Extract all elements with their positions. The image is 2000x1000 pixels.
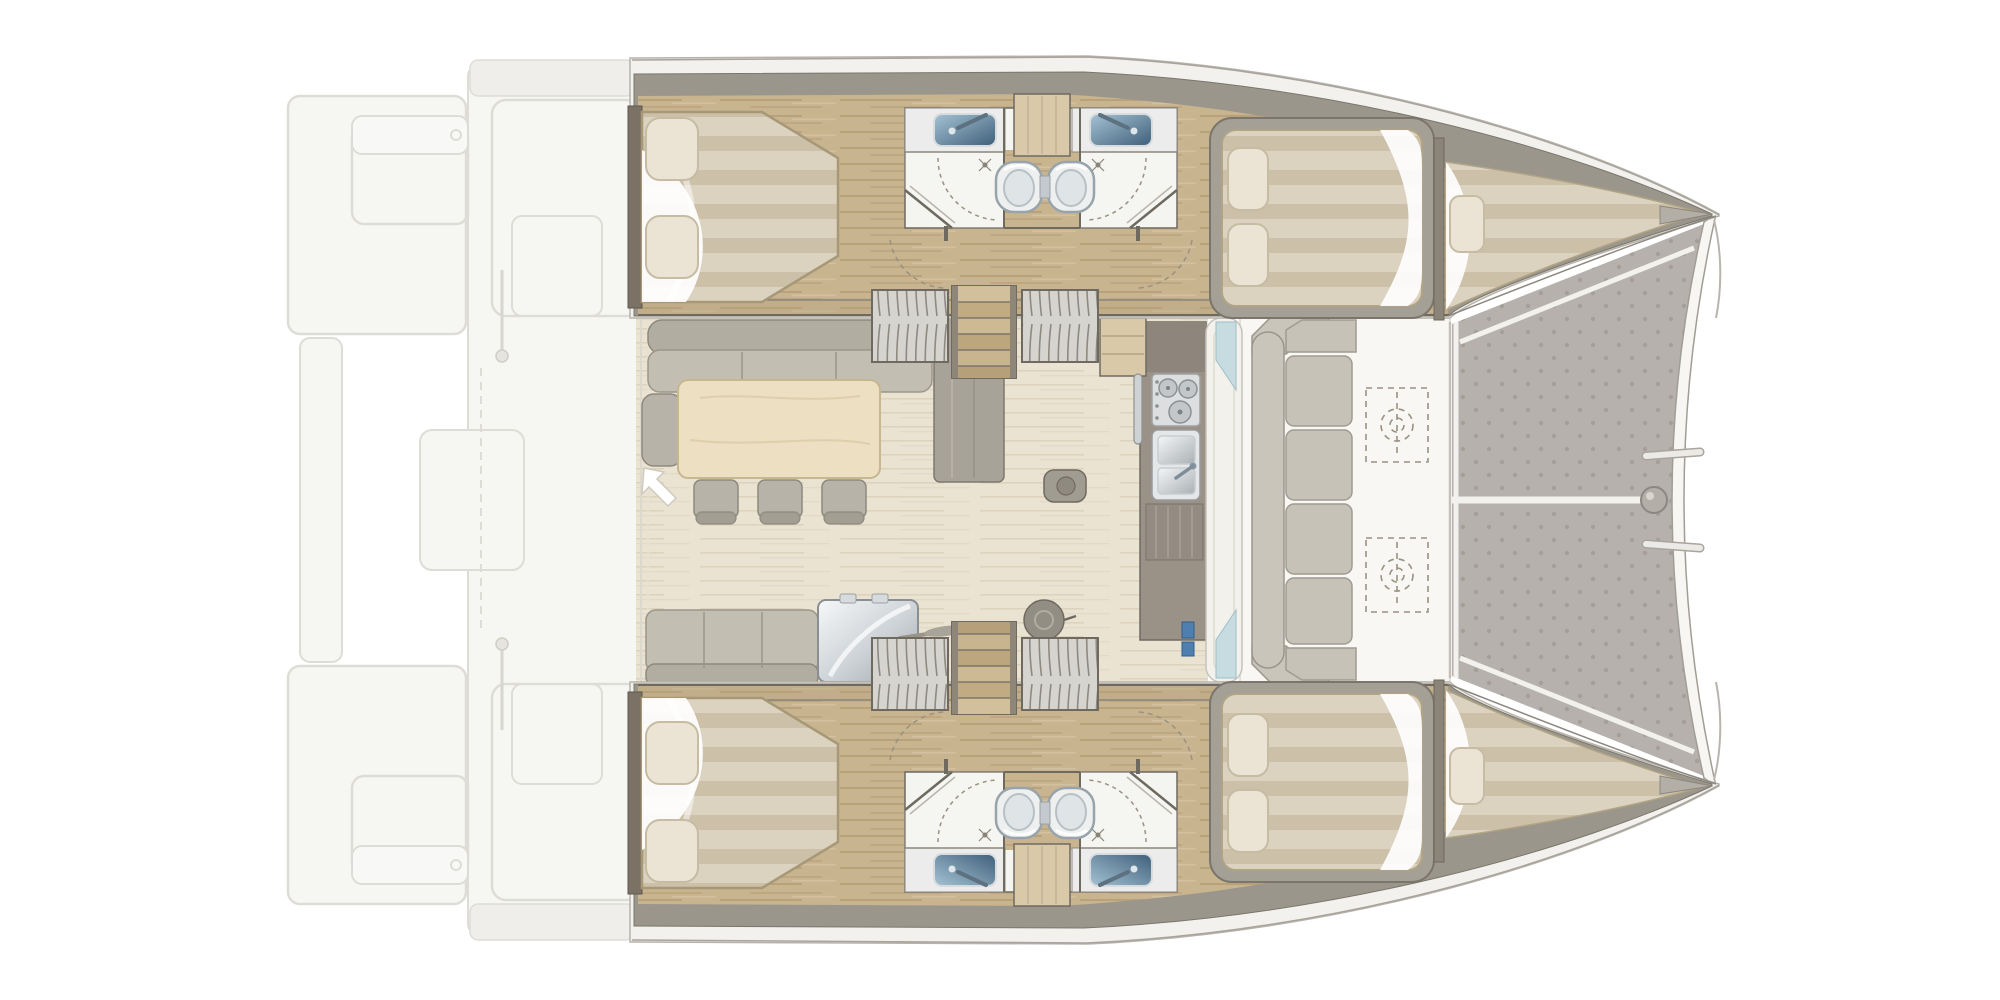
headboard (628, 106, 642, 308)
dining-chair (694, 480, 738, 524)
forward-cockpit (1240, 318, 1450, 682)
lounge-seat (646, 610, 818, 672)
bench-cushion (1286, 578, 1352, 644)
pillow (646, 216, 698, 278)
salon (636, 316, 1242, 686)
divider-wall (1434, 138, 1444, 320)
bench-back (1252, 332, 1284, 668)
toilet-icon (1048, 162, 1094, 212)
dining-chair (758, 480, 802, 524)
engine-hatch-ghost (420, 430, 524, 570)
side-seat (642, 394, 682, 466)
galley-sink-icon (1152, 430, 1200, 500)
pillow (646, 118, 698, 180)
forward-bulkhead (1206, 318, 1242, 682)
door-leaf (944, 226, 948, 241)
lacing-rod (1646, 452, 1700, 456)
side-deck-ghost (470, 60, 634, 96)
floor-plan-canvas: Catamaran yacht interior layout plan, ov… (0, 0, 2000, 1000)
door-leaf (1136, 226, 1140, 241)
galley-handrail (1134, 374, 1142, 444)
beam-fitting-highlight (1646, 492, 1654, 500)
bench-cushion (1286, 356, 1352, 426)
catamaran-floor-plan: Catamaran yacht interior layout plan, ov… (0, 0, 2000, 1000)
bridle-line (1714, 682, 1720, 780)
staircase (952, 286, 1016, 378)
galley-drawers (1146, 504, 1203, 560)
bench-cushion (1286, 504, 1352, 574)
galley-cabinet-top (1140, 322, 1206, 372)
pillow (1450, 196, 1484, 252)
cooktop-icon (1152, 374, 1200, 426)
lacing-rod (1646, 544, 1700, 548)
aft-deck (288, 60, 642, 940)
side-deck-ghost (470, 904, 634, 940)
louvered-locker (872, 290, 948, 362)
beam-fitting (1641, 487, 1667, 513)
floor-stool (1044, 470, 1086, 502)
transom-step (300, 338, 342, 662)
toilet-icon (996, 162, 1042, 212)
galley-shelves (1100, 318, 1146, 376)
louvered-locker (1022, 290, 1098, 362)
pillow (1228, 224, 1268, 286)
bridle-line (1714, 220, 1720, 318)
sink-icon (934, 114, 996, 146)
forward-cabin-bed (1210, 118, 1434, 318)
bench-cushion-corner (1286, 320, 1356, 352)
sink-icon (1090, 114, 1152, 146)
dining-chair (822, 480, 866, 524)
dining-table (678, 380, 880, 478)
bench-cushion (1286, 430, 1352, 500)
pillow (1228, 148, 1268, 210)
bench-cushion-corner (1286, 648, 1356, 680)
toilet-connector (1040, 176, 1050, 198)
foredeck (1452, 214, 1720, 786)
